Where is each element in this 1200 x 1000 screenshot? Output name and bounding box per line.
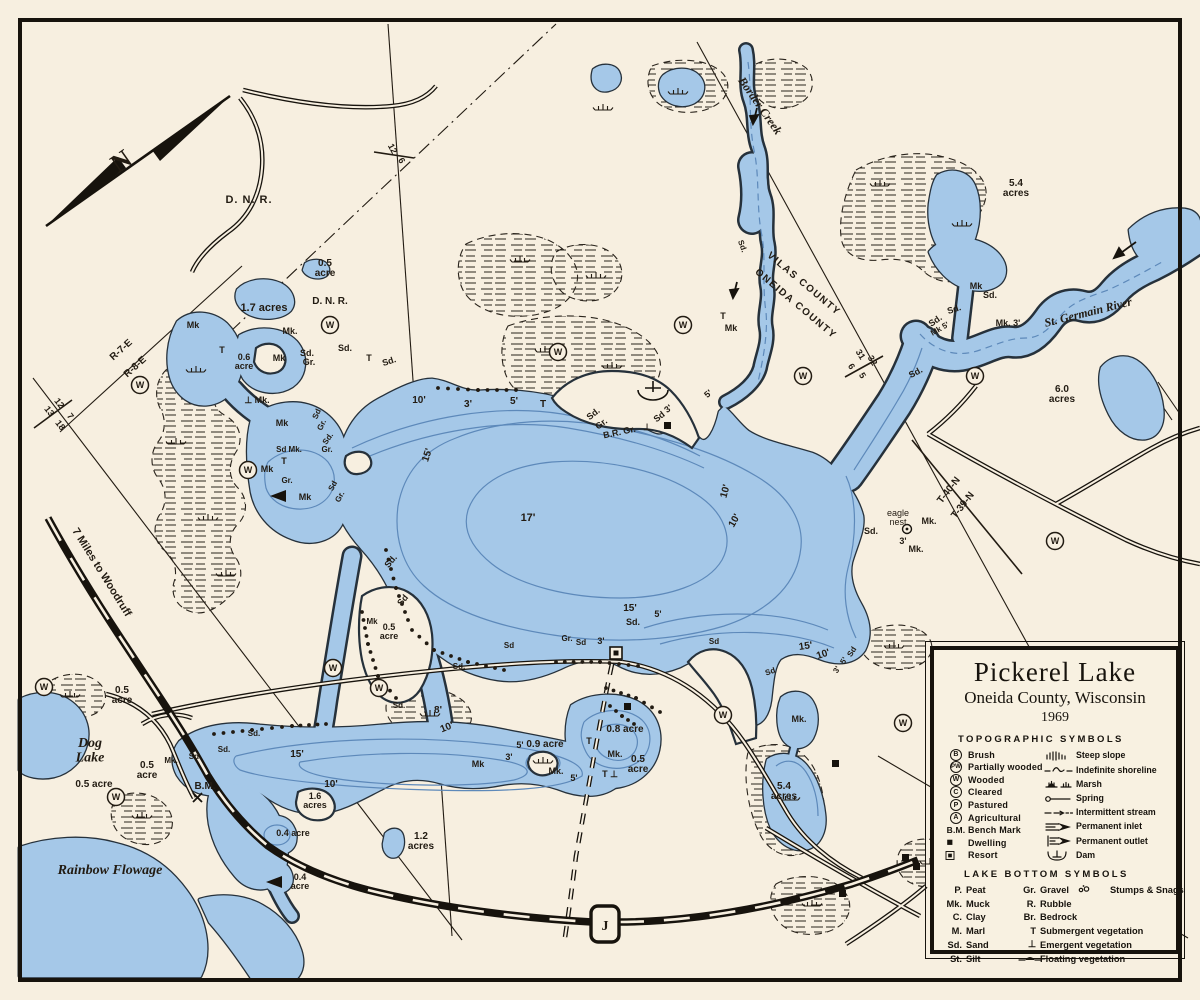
map-label: 15' (290, 749, 304, 760)
map-label: T-39-N (949, 490, 976, 521)
circled-letter-icon: A (950, 812, 962, 824)
legend-label: Steep slope (1076, 750, 1125, 760)
legend-row: Intermittent stream (1044, 805, 1166, 819)
legend-symbol: P. (944, 885, 966, 895)
legend-row: Dwelling (944, 837, 1044, 850)
legend-row: Dam (1044, 848, 1166, 862)
map-label: T (540, 399, 546, 410)
legend-label: Bedrock (1040, 912, 1077, 922)
legend-row: Permanent outlet (1044, 833, 1166, 847)
wooded-circle-icon: W (322, 317, 339, 334)
legend-symbol: Br. (1018, 912, 1040, 922)
wooded-circle-icon: W (967, 368, 984, 385)
wooded-circle-icon: W (371, 680, 388, 697)
wooded-circle-icon: W (675, 317, 692, 334)
legend-symbol (944, 849, 968, 862)
wooded-circle-icon: W (550, 344, 567, 361)
map-label: Sd. (393, 701, 405, 710)
floating-vegetation-icon (1018, 951, 1040, 966)
legend-label: Bench Mark (968, 825, 1021, 835)
legend-bottom-header: LAKE BOTTOM SYMBOLS (964, 869, 1166, 880)
wooded-circle-icon: W (132, 377, 149, 394)
legend-row: C.Clay (944, 910, 1018, 924)
map-label: 3' (505, 752, 512, 762)
map-label: T (720, 311, 726, 321)
wooded-circle-icon: W (1047, 533, 1064, 550)
wooded-circle-icon: W (36, 679, 53, 696)
legend-row: Steep slope (1044, 748, 1166, 762)
map-label: Mk. (548, 766, 563, 776)
svg-text:W: W (679, 320, 688, 330)
legend-symbol: A (944, 812, 968, 824)
stumps-icon (1077, 882, 1107, 897)
legend-label: Dam (1076, 850, 1095, 860)
map-label: 5' (570, 773, 577, 783)
map-label: ⊥ (643, 422, 651, 432)
legend-row: PPastured (944, 799, 1044, 812)
map-label: 1.7 acres (240, 302, 287, 314)
map-label: Gr. (321, 445, 332, 454)
inlet-icon (1044, 820, 1076, 833)
legend-row: P.Peat (944, 883, 1018, 897)
legend-row: Indefinite shoreline (1044, 763, 1166, 777)
map-label: Sd (709, 637, 719, 646)
stumps-snags-entry: Stumps & Snags (1077, 882, 1184, 897)
legend-symbol: M. (944, 926, 966, 936)
map-label: T ⊥ (602, 769, 618, 779)
map-label: 15' (798, 640, 813, 653)
map-label: 1.2acres (408, 831, 435, 852)
map-label: 0.4acre (291, 872, 310, 891)
resort-icon (944, 849, 968, 862)
map-label: Mk (273, 353, 286, 363)
map-label: Sd. (864, 526, 878, 536)
legend-label: Wooded (968, 775, 1005, 785)
outlet-icon (1044, 834, 1076, 847)
map-label: 6.0acres (1049, 384, 1076, 405)
map-label: 8' (434, 705, 442, 716)
map-label: Rainbow Flowage (57, 863, 163, 878)
circled-letter-icon: W (950, 774, 962, 786)
legend-label: Marl (966, 926, 985, 936)
resort-icon (610, 647, 622, 659)
legend-label: Permanent inlet (1076, 821, 1142, 831)
legend-row: Floating vegetation (1018, 952, 1184, 966)
map-label: 5.4acres (1003, 178, 1030, 199)
map-label: Sd. (338, 343, 352, 353)
legend-topo-header: TOPOGRAPHIC SYMBOLS (958, 734, 1166, 745)
map-label: Mk. (921, 516, 936, 526)
legend-label: Cleared (968, 787, 1002, 797)
legend-row: PWPartially wooded (944, 761, 1044, 774)
map-label: 5' (510, 396, 518, 407)
legend-symbol: B.M. (944, 825, 968, 835)
map-label: Gr. (303, 357, 316, 367)
map-label: 5' (516, 740, 523, 750)
legend-row: B.M.Bench Mark (944, 824, 1044, 837)
legend-label: Floating vegetation (1040, 954, 1125, 964)
map-label: Mk. (282, 326, 297, 336)
legend-symbol: Gr. (1018, 885, 1040, 895)
map-label: Gr. (561, 634, 572, 643)
legend-box: Pickerel Lake Oneida County, Wisconsin 1… (930, 646, 1180, 954)
map-label: 17' (521, 512, 536, 524)
legend-label: Partially wooded (968, 762, 1043, 772)
map-label: Mk (366, 617, 378, 626)
map-label: Mk (261, 464, 274, 474)
legend-label: Resort (968, 850, 998, 860)
legend-year: 1969 (944, 710, 1166, 726)
circled-letter-icon: B (950, 749, 962, 761)
map-label: T (586, 736, 592, 746)
legend-symbol: Mk. (944, 899, 966, 909)
map-label: Mk (970, 281, 983, 291)
svg-text:W: W (112, 792, 121, 802)
legend-symbol: B (944, 749, 968, 761)
map-label: 6 (846, 362, 857, 372)
map-label: Mk. (908, 544, 923, 554)
legend-label: Stumps & Snags (1110, 885, 1184, 895)
svg-text:W: W (326, 320, 335, 330)
map-label: Sd. (736, 239, 749, 254)
dam-icon (1044, 848, 1076, 861)
legend-bottom-right-column: Gr.GravelStumps & SnagsR.RubbleBr.Bedroc… (1018, 883, 1184, 966)
legend-row: ⊥Emergent vegetation (1018, 938, 1184, 952)
svg-text:W: W (799, 371, 808, 381)
map-label: 3' (464, 399, 472, 410)
legend-symbol: St. (944, 954, 966, 964)
legend-row: WWooded (944, 774, 1044, 787)
dwelling-icon (944, 836, 968, 849)
spring-icon (1044, 792, 1076, 805)
map-label: 5' (702, 388, 714, 400)
wooded-circle-icon: W (108, 789, 125, 806)
legend-label: Submergent vegetation (1040, 926, 1143, 936)
circled-letter-icon: P (950, 799, 962, 811)
legend-topo-left-column: BBrushPWPartially woodedWWoodedCClearedP… (944, 748, 1044, 862)
legend-label: Indefinite shoreline (1076, 765, 1157, 775)
map-label: Sd. (983, 290, 997, 300)
legend-row: CCleared (944, 786, 1044, 799)
marsh-icon (1044, 777, 1076, 790)
legend-label: Marsh (1076, 779, 1102, 789)
map-label: 15' (623, 603, 637, 614)
map-label: 3' (831, 665, 842, 675)
svg-text:W: W (1051, 536, 1060, 546)
legend-label: Rubble (1040, 899, 1072, 909)
map-label: 5 (857, 371, 868, 381)
legend-symbol: C. (944, 912, 966, 922)
legend-title: Pickerel Lake (944, 658, 1166, 686)
map-label: J (602, 919, 609, 934)
map-label: T (219, 345, 225, 355)
map-label: Mk (187, 320, 200, 330)
legend-subtitle: Oneida County, Wisconsin (944, 688, 1166, 708)
legend-row: AAgricultural (944, 811, 1044, 824)
map-label: T (366, 353, 372, 363)
wooded-circle-icon: W (715, 707, 732, 724)
map-label: 10' (412, 395, 426, 406)
wooded-circle-icon: W (895, 715, 912, 732)
map-label: R-7-E (108, 337, 135, 363)
map-label: Sd. (189, 752, 201, 761)
svg-text:W: W (329, 663, 338, 673)
map-label: Sd (576, 638, 586, 647)
circled-letter-icon: PW (950, 761, 962, 773)
map-label: 5' (654, 609, 661, 619)
map-label: 0.5acre (315, 258, 336, 279)
legend-symbol (944, 836, 968, 849)
map-label: D. N. R. (225, 194, 272, 206)
circled-letter-icon: C (950, 786, 962, 798)
svg-text:W: W (244, 465, 253, 475)
map-label: Sd. (453, 662, 465, 671)
legend-label: Peat (966, 885, 986, 895)
legend-label: Pastured (968, 800, 1008, 810)
legend-row: R.Rubble (1018, 897, 1184, 911)
wooded-circle-icon: W (240, 462, 257, 479)
svg-text:W: W (375, 683, 384, 693)
legend-row: Gr.GravelStumps & Snags (1018, 883, 1184, 897)
map-label: Sd. (626, 617, 640, 627)
intermit-icon (1044, 806, 1076, 819)
svg-text:W: W (719, 710, 728, 720)
svg-text:W: W (971, 371, 980, 381)
map-label: eaglenest (887, 508, 909, 527)
legend-label: Emergent vegetation (1040, 940, 1132, 950)
map-label: Sd. (218, 745, 230, 754)
legend-label: Spring (1076, 793, 1104, 803)
legend-label: Permanent outlet (1076, 836, 1148, 846)
indef-icon (1044, 763, 1076, 776)
legend-row: Spring (1044, 791, 1166, 805)
legend-row: Marsh (1044, 777, 1166, 791)
map-label: Sd Mk. (276, 445, 302, 454)
svg-text:W: W (554, 347, 563, 357)
legend-row: Sd.Sand (944, 938, 1018, 952)
legend-symbol: PW (944, 761, 968, 773)
map-label: R-8-E (122, 354, 149, 380)
map-label: 10' (324, 779, 338, 790)
map-label: Mk. (607, 749, 622, 759)
map-label: Mk. 3' (996, 318, 1021, 328)
legend-label: Muck (966, 899, 990, 909)
map-label: 3' (597, 636, 604, 646)
map-label: Gr. (281, 476, 292, 485)
legend-row: TSubmergent vegetation (1018, 924, 1184, 938)
legend-symbol: R. (1018, 899, 1040, 909)
map-label: 0.8 acre (606, 724, 644, 735)
legend-bottom-left-column: P.PeatMk.MuckC.ClayM.MarlSd.SandSt.Silt (944, 883, 1018, 966)
legend-row: Mk.Muck (944, 897, 1018, 911)
svg-text:W: W (136, 380, 145, 390)
legend-topo-right-column: Steep slopeIndefinite shorelineMarshSpri… (1044, 748, 1166, 862)
legend-label: Clay (966, 912, 986, 922)
map-label: DogLake (75, 736, 105, 765)
legend-label: Gravel (1040, 885, 1069, 895)
map-label: 0.5acre (112, 685, 133, 706)
steep-icon (1044, 749, 1076, 762)
legend-row: Br.Bedrock (1018, 910, 1184, 924)
map-label: Mk (276, 418, 289, 428)
map-label: B.M. (194, 781, 215, 792)
lake-map-page: { "legend": { "title": "Pickerel Lake", … (0, 0, 1200, 1000)
legend-symbol: ⊥ (1018, 939, 1040, 950)
map-label: Mk (725, 323, 738, 333)
map-label: Mk (299, 492, 312, 502)
legend-label: Sand (966, 940, 989, 950)
legend-label: Brush (968, 750, 995, 760)
svg-text:W: W (40, 682, 49, 692)
legend-row: M.Marl (944, 924, 1018, 938)
map-label: Sd. (248, 729, 260, 738)
map-label: Mk. (791, 714, 806, 724)
map-label: D. N. R. (312, 296, 348, 307)
legend-label: Dwelling (968, 838, 1007, 848)
legend-symbol: Sd. (944, 940, 966, 950)
legend-row: St.Silt (944, 952, 1018, 966)
legend-row: Permanent inlet (1044, 819, 1166, 833)
map-label: Mk (472, 759, 485, 769)
legend-symbol: C (944, 786, 968, 798)
legend-label: Agricultural (968, 813, 1021, 823)
legend-symbol: P (944, 799, 968, 811)
map-label: 3' (899, 536, 906, 546)
legend-label: Intermittent stream (1076, 807, 1156, 817)
map-label: ⊥ Mk. (244, 395, 269, 405)
north-arrow-icon (46, 96, 230, 226)
map-label: 0.4 acre (276, 828, 310, 838)
legend-symbol: T (1018, 926, 1040, 936)
legend-label: Silt (966, 954, 980, 964)
map-label: Sd. (381, 354, 397, 368)
legend-row: BBrush (944, 748, 1044, 761)
legend-row: Resort (944, 849, 1044, 862)
map-label: T (281, 456, 287, 466)
wooded-circle-icon: W (325, 660, 342, 677)
map-label: 0.9 acre (526, 739, 564, 750)
map-label: 0.5 acre (75, 779, 113, 790)
wooded-circle-icon: W (795, 368, 812, 385)
map-label: Mk. (164, 756, 177, 765)
map-label: 0.5acre (137, 760, 158, 781)
svg-text:W: W (899, 718, 908, 728)
map-label: Sd (504, 641, 514, 650)
legend-symbol: W (944, 774, 968, 786)
